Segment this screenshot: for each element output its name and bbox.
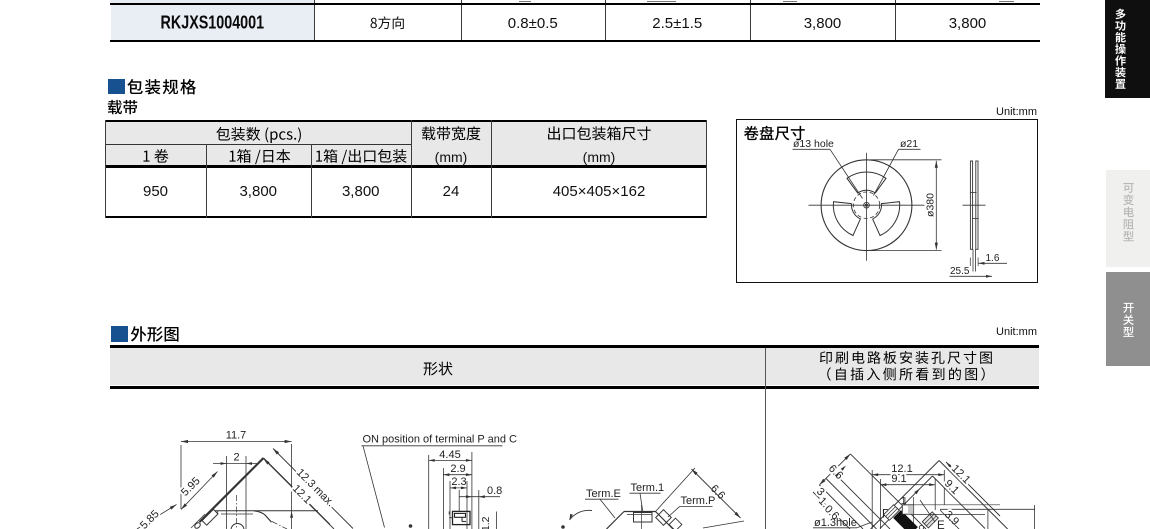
svg-text:RKJXS1004001: RKJXS1004001 [161, 12, 265, 32]
svg-text:1.6: 1.6 [986, 253, 1000, 264]
svg-text:ø1.2: ø1.2 [480, 516, 492, 529]
svg-text:2: 2 [233, 452, 239, 464]
svg-text:2.9: 2.9 [450, 463, 465, 475]
svg-text:11.7: 11.7 [226, 430, 247, 442]
svg-text:9.1: 9.1 [942, 478, 961, 497]
svg-text:4.45: 4.45 [439, 449, 460, 461]
svg-text:Term.1: Term.1 [631, 482, 665, 494]
svg-text:ø1.3hole: ø1.3hole [814, 517, 857, 529]
svg-text:25.5: 25.5 [950, 266, 970, 277]
svg-text:Term.E: Term.E [586, 488, 621, 500]
svg-text:ø380: ø380 [925, 193, 937, 217]
svg-text:0.8: 0.8 [487, 485, 502, 497]
svg-text:E: E [937, 520, 945, 529]
svg-text:ø13 hole: ø13 hole [793, 138, 834, 150]
svg-text:2.3: 2.3 [451, 476, 466, 488]
svg-text:3.9: 3.9 [942, 509, 961, 528]
svg-text:5.95: 5.95 [179, 475, 203, 499]
svg-text:9.1: 9.1 [891, 473, 906, 485]
svg-text:6.6: 6.6 [826, 463, 845, 482]
svg-text:ø21: ø21 [900, 138, 918, 150]
svg-text:Term.P: Term.P [681, 495, 716, 507]
svg-text:5.85: 5.85 [138, 508, 162, 529]
svg-text:ON position of terminal P and: ON position of terminal P and C [363, 434, 518, 446]
